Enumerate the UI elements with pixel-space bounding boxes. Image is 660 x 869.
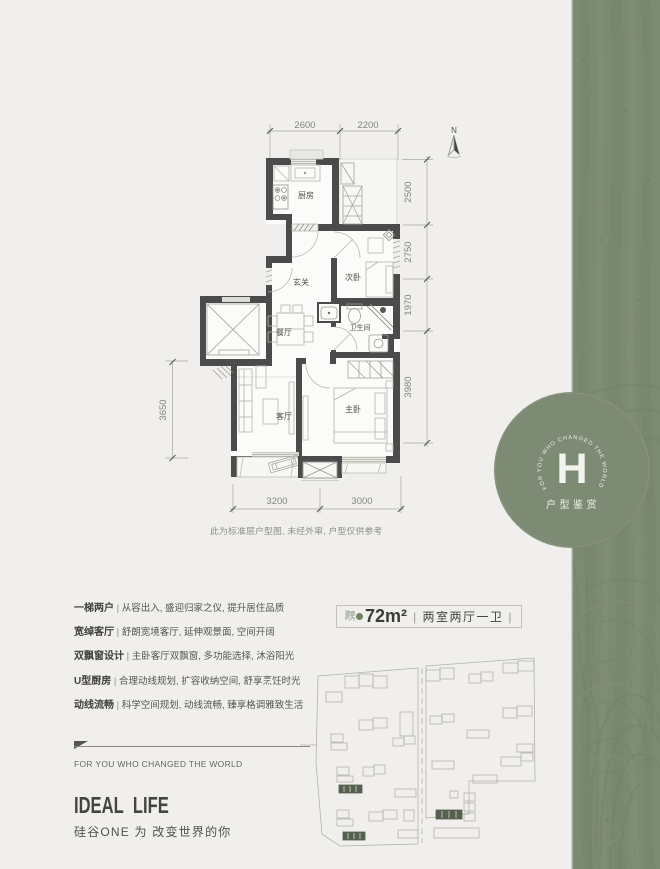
svg-text:次卧: 次卧 bbox=[345, 272, 361, 282]
svg-text:2750: 2750 bbox=[403, 241, 414, 262]
svg-text:2200: 2200 bbox=[357, 120, 378, 131]
svg-text:3980: 3980 bbox=[403, 376, 414, 397]
svg-text:餐厅: 餐厅 bbox=[276, 328, 292, 337]
svg-text:3000: 3000 bbox=[351, 496, 372, 507]
svg-text:此为标准层户型图, 未经外审, 户型仅供参考: 此为标准层户型图, 未经外审, 户型仅供参考 bbox=[210, 525, 383, 536]
svg-text:3200: 3200 bbox=[266, 496, 287, 507]
svg-text:N: N bbox=[451, 126, 457, 135]
svg-text:客厅: 客厅 bbox=[276, 411, 292, 421]
svg-text:玄关: 玄关 bbox=[293, 277, 309, 287]
svg-text:2500: 2500 bbox=[403, 181, 414, 202]
svg-text:1970: 1970 bbox=[403, 294, 414, 315]
svg-text:2600: 2600 bbox=[294, 120, 315, 131]
svg-text:3650: 3650 bbox=[158, 399, 169, 420]
svg-text:主卧: 主卧 bbox=[345, 404, 361, 414]
svg-text:厨房: 厨房 bbox=[298, 190, 314, 200]
svg-text:卫生间: 卫生间 bbox=[350, 323, 371, 332]
